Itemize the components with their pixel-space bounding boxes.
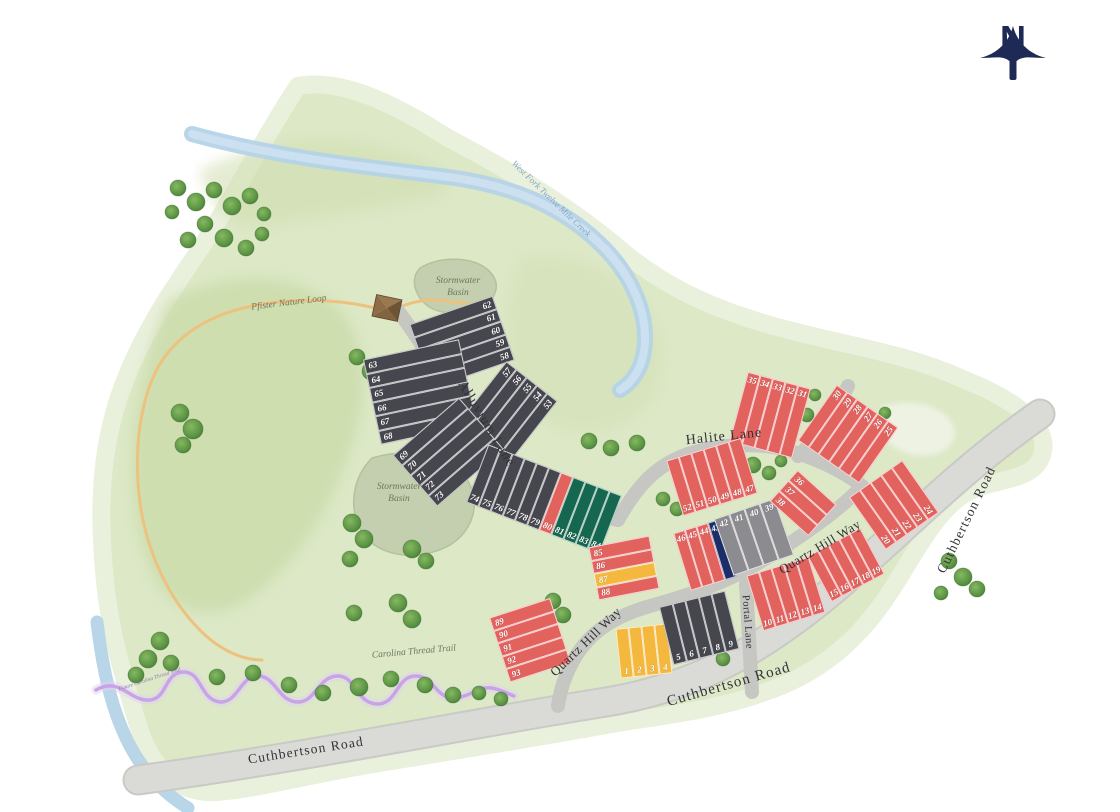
tree-icon [389, 594, 407, 612]
tree-icon [175, 437, 191, 453]
lot-number: 58 [498, 350, 510, 362]
lot-number: 90 [498, 628, 510, 640]
tree-icon [171, 404, 189, 422]
tree-icon [342, 551, 358, 567]
lot-number: 91 [502, 641, 514, 653]
lot-number: 2 [637, 664, 643, 674]
lot-number: 62 [481, 299, 493, 311]
lot-number: 8 [714, 642, 721, 653]
lot-number: 68 [382, 430, 393, 442]
tree-icon [350, 678, 368, 696]
lot-number: 65 [373, 388, 384, 400]
tree-icon [472, 686, 486, 700]
lot-number: 93 [510, 667, 522, 679]
tree-icon [183, 419, 203, 439]
lot-number: 14 [812, 601, 824, 613]
lot-number: 4 [663, 662, 669, 672]
north-arrow: N [978, 24, 1048, 124]
tree-icon [209, 669, 225, 685]
tree-icon [403, 610, 421, 628]
lot-number: 38 [774, 495, 787, 508]
tree-icon [197, 216, 213, 232]
tree-icon [581, 433, 597, 449]
lot-number: 42 [718, 517, 730, 529]
lot-number: 19 [870, 564, 883, 577]
tree-icon [383, 671, 399, 687]
tree-icon [403, 540, 421, 558]
lot-number: 33 [772, 381, 783, 393]
tree-icon [941, 553, 957, 569]
lot-number: 35 [747, 374, 758, 386]
lot-number: 3 [650, 663, 656, 673]
lot-number: 51 [694, 498, 706, 510]
north-arrow-icon [978, 24, 1048, 80]
tree-icon [170, 180, 186, 196]
lot-number: 47 [744, 482, 756, 494]
lot-number: 6 [688, 648, 695, 659]
lot-number: 34 [759, 378, 770, 390]
lot-number: 59 [494, 337, 506, 349]
block-1-4: 1234 [616, 623, 673, 678]
tree-icon [343, 514, 361, 532]
tree-icon [165, 205, 179, 219]
lot-number: 50 [706, 494, 718, 506]
tree-icon [775, 455, 787, 467]
tree-icon [809, 389, 821, 401]
lot-number: 7 [701, 645, 708, 656]
lot-number: 31 [797, 388, 808, 400]
tree-icon [139, 650, 157, 668]
tree-icon [223, 197, 241, 215]
lot-number: 13 [799, 605, 811, 617]
tree-icon [281, 677, 297, 693]
lot-number: 63 [367, 359, 378, 371]
lot-number: 5 [675, 651, 682, 662]
lot-number: 87 [598, 573, 609, 585]
tree-icon [187, 193, 205, 211]
lot-number: 40 [748, 506, 760, 518]
lot-number: 61 [485, 311, 497, 323]
tree-icon [355, 530, 373, 548]
tree-icon [128, 667, 144, 683]
lot-number: 64 [370, 373, 381, 385]
lot-number: 20 [880, 533, 893, 546]
lot-number: 48 [731, 486, 743, 498]
lot-number: 1 [624, 666, 630, 676]
lot-number: 12 [787, 609, 799, 621]
site-map: 6261605958636465666768575655545369707172… [0, 0, 1120, 812]
lot-number: 86 [595, 560, 606, 572]
lot-number: 89 [493, 615, 505, 627]
tree-icon [206, 182, 222, 198]
tree-icon [969, 581, 985, 597]
lot-number: 60 [490, 324, 502, 336]
tree-icon [215, 229, 233, 247]
lot-number: 41 [733, 512, 745, 524]
tree-icon [163, 655, 179, 671]
lot-number: 49 [719, 490, 731, 502]
tree-icon [238, 240, 254, 256]
tree-icon [257, 207, 271, 221]
lot-number: 52 [682, 501, 694, 513]
tree-icon [349, 349, 365, 365]
tree-icon [603, 440, 619, 456]
lot-number: 32 [784, 384, 795, 396]
tree-icon [445, 687, 461, 703]
lot-number: 73 [432, 489, 445, 502]
lot-number: 92 [506, 654, 518, 666]
tree-icon [417, 677, 433, 693]
tree-icon [242, 188, 258, 204]
lot-number: 67 [379, 416, 390, 428]
tree-icon [346, 605, 362, 621]
tree-icon [954, 568, 972, 586]
lot-number: 10 [762, 617, 774, 629]
lot-number: 66 [376, 402, 387, 414]
tree-icon [656, 492, 670, 506]
tree-icon [494, 692, 508, 706]
lot-number: 9 [727, 638, 734, 649]
tree-icon [629, 435, 645, 451]
tree-icon [315, 685, 331, 701]
tree-icon [180, 232, 196, 248]
tree-icon [255, 227, 269, 241]
tree-icon [934, 586, 948, 600]
lot-number: 88 [600, 586, 611, 598]
tree-icon [245, 665, 261, 681]
tree-icon [762, 466, 776, 480]
map-canvas [0, 0, 1120, 812]
tree-icon [151, 632, 169, 650]
tree-icon [418, 553, 434, 569]
lot-number: 85 [593, 547, 604, 559]
lot-number: 11 [774, 613, 785, 625]
